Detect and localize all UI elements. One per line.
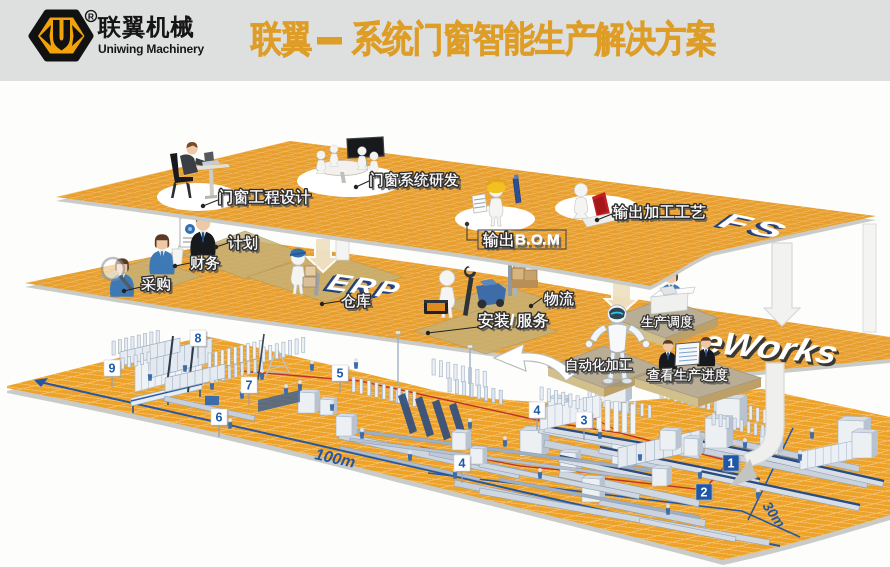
svg-text:.: .: [526, 232, 530, 249]
svg-text:4: 4: [459, 457, 466, 471]
svg-text:5: 5: [337, 367, 344, 381]
svg-text:3: 3: [581, 414, 588, 428]
svg-text:7: 7: [246, 379, 253, 393]
svg-text:O: O: [531, 232, 543, 249]
svg-text:B: B: [515, 232, 526, 249]
svg-text:.: .: [542, 232, 546, 249]
svg-text:6: 6: [216, 411, 223, 425]
svg-text:Uniwing Machinery: Uniwing Machinery: [98, 42, 204, 56]
svg-text:8: 8: [195, 332, 202, 346]
svg-text:9: 9: [109, 362, 116, 376]
svg-text:4: 4: [534, 404, 541, 418]
svg-text:1: 1: [728, 457, 735, 471]
svg-text:2: 2: [701, 486, 708, 500]
svg-text:M: M: [547, 232, 560, 249]
svg-text:R: R: [88, 11, 94, 21]
